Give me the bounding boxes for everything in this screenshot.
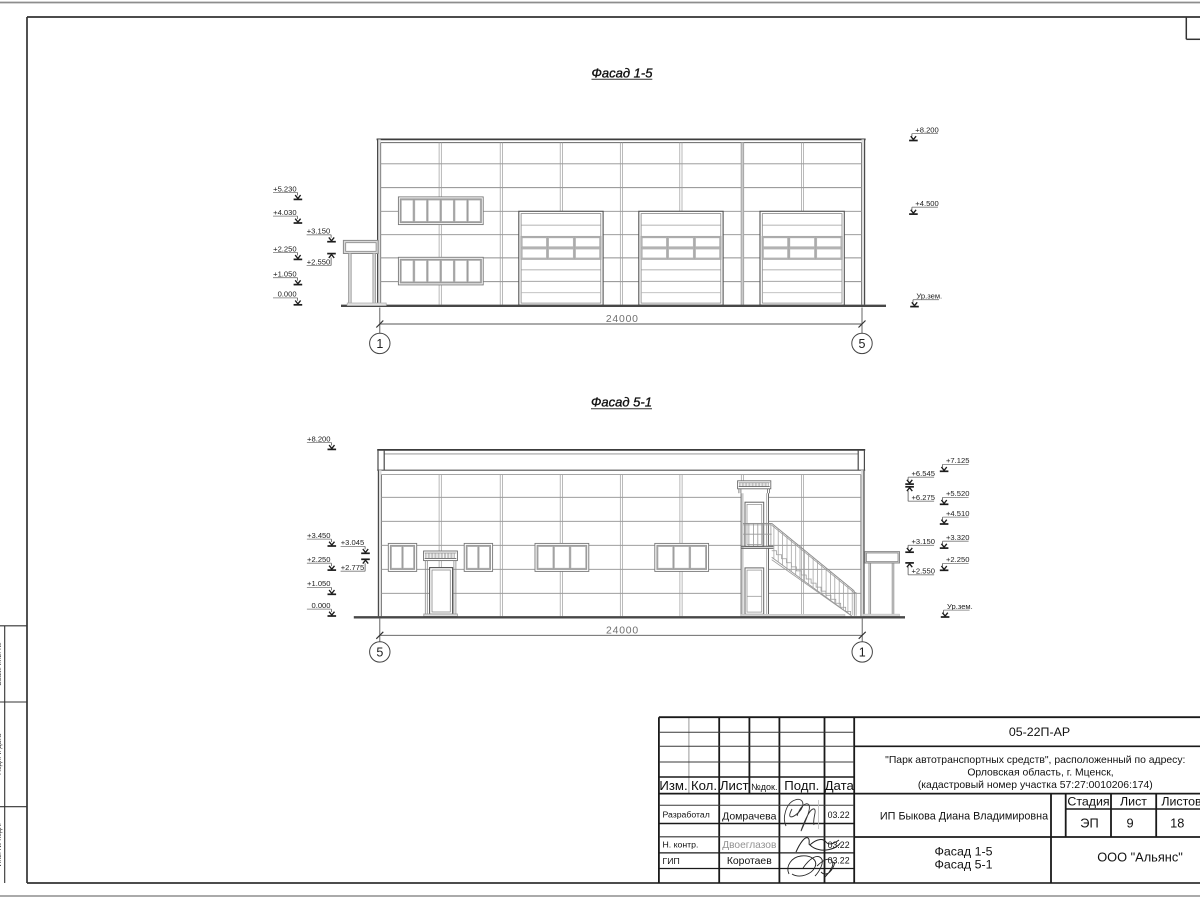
svg-text:1: 1	[376, 337, 383, 351]
svg-text:0.000: 0.000	[278, 290, 297, 299]
svg-text:24000: 24000	[606, 314, 639, 325]
svg-text:Разработал: Разработал	[663, 810, 710, 820]
svg-text:Дата: Дата	[825, 778, 855, 793]
svg-text:Двоеглазов: Двоеглазов	[722, 840, 776, 851]
svg-text:+1.050: +1.050	[307, 579, 330, 588]
svg-text:ИП Быкова Диана Владимировна: ИП Быкова Диана Владимировна	[880, 810, 1048, 822]
svg-text:+1.050: +1.050	[273, 270, 296, 279]
svg-text:0.000: 0.000	[311, 601, 330, 610]
svg-text:+2.550: +2.550	[912, 567, 935, 576]
svg-text:+3.150: +3.150	[912, 537, 935, 546]
svg-text:Орловская область, г. Мценск,: Орловская область, г. Мценск,	[967, 767, 1113, 779]
svg-text:1: 1	[859, 645, 866, 659]
svg-text:+6.545: +6.545	[912, 469, 935, 478]
svg-text:ООО "Альянс": ООО "Альянс"	[1097, 849, 1183, 864]
svg-text:03.22: 03.22	[828, 810, 850, 820]
svg-text:+2.775: +2.775	[341, 563, 364, 572]
svg-text:Взам. инв. №: Взам. инв. №	[0, 642, 3, 685]
svg-text:Изм.: Изм.	[659, 778, 687, 793]
svg-text:5: 5	[859, 337, 866, 351]
svg-text:Лист: Лист	[720, 778, 749, 793]
svg-text:+3.450: +3.450	[307, 531, 330, 540]
svg-text:Кол.: Кол.	[691, 778, 717, 793]
svg-text:+2.250: +2.250	[307, 555, 330, 564]
svg-text:+4.030: +4.030	[273, 208, 296, 217]
svg-text:Домрачева: Домрачева	[722, 810, 777, 822]
svg-text:Коротаев: Коротаев	[727, 856, 772, 867]
svg-text:+5.230: +5.230	[273, 184, 296, 193]
svg-text:Н. контр.: Н. контр.	[663, 839, 699, 849]
svg-text:+2.550: +2.550	[307, 257, 330, 266]
svg-text:+3.045: +3.045	[341, 538, 364, 547]
svg-text:24000: 24000	[606, 625, 639, 636]
svg-text:+7.125: +7.125	[946, 456, 969, 465]
svg-text:"Парк автотранспортных средств: "Парк автотранспортных средств", располо…	[885, 755, 1185, 766]
svg-text:Ур.зем.: Ур.зем.	[916, 292, 942, 301]
svg-text:05-22П-АР: 05-22П-АР	[1009, 725, 1070, 739]
svg-text:Инв. № подл.: Инв. № подл.	[0, 823, 3, 867]
svg-text:Фасад 1-5: Фасад 1-5	[935, 844, 993, 858]
svg-text:+8.200: +8.200	[307, 434, 330, 443]
svg-text:+2.250: +2.250	[273, 244, 296, 253]
svg-text:ГИП: ГИП	[663, 856, 680, 866]
svg-text:Подп. и дата: Подп. и дата	[0, 734, 3, 775]
svg-text:18: 18	[1170, 816, 1184, 831]
svg-text:№док.: №док.	[751, 782, 777, 792]
svg-text:+2.250: +2.250	[946, 555, 969, 564]
svg-text:Лист: Лист	[1120, 794, 1147, 808]
svg-text:9: 9	[1126, 816, 1133, 831]
svg-text:Фасад 5-1: Фасад 5-1	[935, 858, 993, 872]
svg-text:+4.510: +4.510	[946, 509, 969, 518]
svg-text:Фасад 1-5: Фасад 1-5	[592, 65, 654, 80]
svg-text:Подп.: Подп.	[784, 778, 819, 793]
svg-text:+3.320: +3.320	[946, 533, 969, 542]
svg-text:Листов: Листов	[1161, 794, 1200, 808]
svg-text:+4.500: +4.500	[915, 199, 938, 208]
svg-text:+3.150: +3.150	[307, 227, 330, 236]
svg-text:+5.520: +5.520	[946, 489, 969, 498]
svg-text:5: 5	[376, 645, 383, 659]
svg-text:Ур.зем.: Ур.зем.	[947, 602, 973, 611]
svg-text:+8.200: +8.200	[915, 125, 938, 134]
svg-text:(кадастровый номер участка 57:: (кадастровый номер участка 57:27:0010206…	[918, 780, 1153, 791]
svg-text:Стадия: Стадия	[1067, 794, 1109, 808]
svg-text:Фасад 5-1: Фасад 5-1	[591, 395, 652, 410]
svg-text:ЭП: ЭП	[1080, 816, 1098, 831]
svg-text:+6.275: +6.275	[912, 493, 935, 502]
